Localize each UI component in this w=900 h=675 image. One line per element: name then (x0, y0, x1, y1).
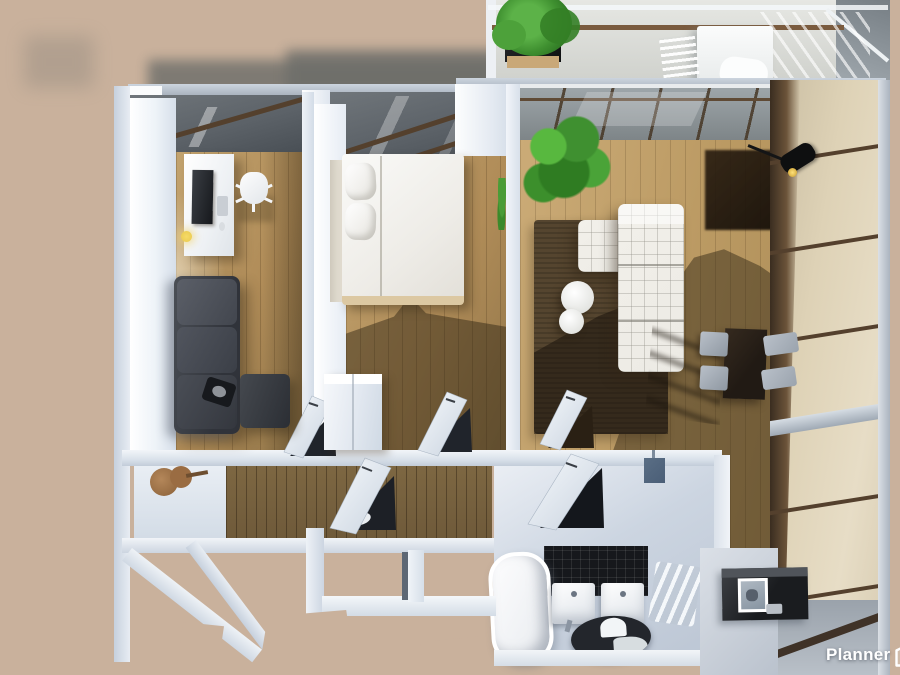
wall-mounted-cabinet (644, 458, 665, 483)
bed-pillow-1 (344, 162, 377, 201)
watermark: Planner 5d (826, 643, 900, 667)
floorplan-render: Planner 5d (0, 0, 900, 675)
sofa-object-detail (211, 384, 228, 399)
duvet-fold-line (380, 156, 382, 302)
corridor-wall-small (408, 550, 424, 602)
hallway-wood-paneling (226, 466, 492, 538)
patio-chair-shadows (760, 12, 870, 80)
sofa-armrest (618, 204, 684, 224)
dining-table (723, 328, 767, 399)
office-bedroom-wall (302, 92, 314, 456)
balcony-plant-leaf-cluster-2 (492, 20, 526, 50)
dining-chair-1 (699, 331, 728, 356)
desk-keyboard (217, 196, 228, 216)
hallway-wall-upper (122, 450, 722, 466)
balcony-plant-leaf-cluster (540, 8, 580, 44)
glass-right-edge (878, 80, 890, 675)
desk-mouse (219, 222, 225, 231)
roof-white-edge (519, 84, 787, 88)
office-west-wall (130, 98, 176, 456)
floor-cutout-3 (420, 636, 484, 675)
floor-cutout-2 (258, 610, 356, 675)
monstera-plant (512, 110, 616, 214)
sofa-seam (618, 264, 684, 266)
bed-foot-trim (342, 296, 464, 305)
office-chair-seat (240, 172, 268, 204)
faucet-dot (571, 591, 577, 597)
dark-sofa-cushion-2 (177, 327, 237, 373)
picture-smudge (746, 589, 758, 601)
bathroom-bottom-wall (494, 650, 722, 666)
mirror-highlight-1 (600, 617, 627, 638)
bathtub (487, 550, 555, 665)
faucet-dot (620, 591, 626, 597)
window-reflection (356, 96, 416, 158)
black-vanity-counter (722, 567, 809, 620)
wardrobe (324, 374, 382, 450)
bathroom-sink-1 (552, 583, 595, 624)
floor-cutout-1 (176, 622, 224, 675)
desk-monitor (192, 170, 214, 224)
dining-chair-2 (699, 365, 728, 390)
spotlight-glow (788, 168, 797, 177)
framed-picture (738, 578, 769, 613)
planter-base (507, 56, 559, 68)
picture-image (741, 581, 765, 609)
wardrobe-door-line (352, 374, 354, 450)
sofa-seam-2 (618, 320, 684, 322)
coffee-table-small (559, 309, 584, 334)
dark-sofa-chaise (240, 374, 290, 428)
counter-faucet (766, 604, 782, 614)
desk-lamp (181, 231, 192, 242)
background-shadow-faint (24, 36, 94, 88)
bed-pillow-2 (344, 202, 376, 240)
watermark-brand-text: Planner (826, 645, 890, 665)
planner5d-logo-icon: 5d (895, 643, 900, 667)
bed-headboard (330, 160, 342, 302)
left-outer-wall (114, 86, 130, 662)
radiator (648, 561, 702, 627)
counter-top-edge (722, 567, 808, 577)
dark-sofa-cushion-1 (177, 279, 237, 325)
